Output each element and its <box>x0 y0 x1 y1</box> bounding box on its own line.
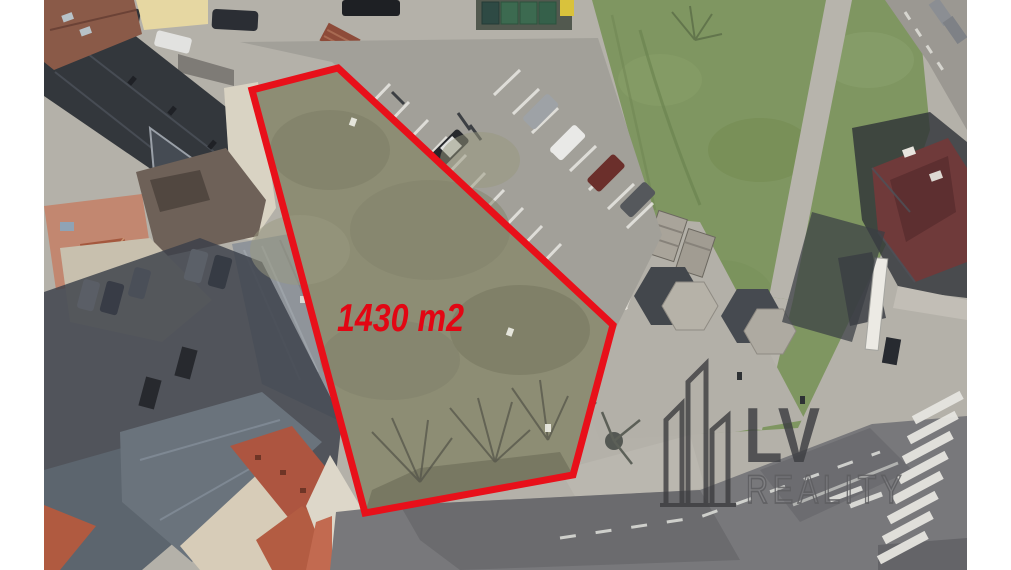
watermark-brand-bottom: REALITY <box>746 468 906 512</box>
car-dark <box>212 9 259 31</box>
watermark-brand-top: LV <box>744 391 820 479</box>
aerial-scene-svg: 1430 m2 LV REALITY <box>0 0 1011 570</box>
dumpster-area <box>476 0 574 30</box>
aerial-map-image: 1430 m2 LV REALITY <box>0 0 1011 570</box>
car-black <box>342 0 400 16</box>
area-label: 1430 m2 <box>337 297 464 340</box>
yellow-bin <box>560 0 574 16</box>
pedestrian <box>737 372 742 380</box>
